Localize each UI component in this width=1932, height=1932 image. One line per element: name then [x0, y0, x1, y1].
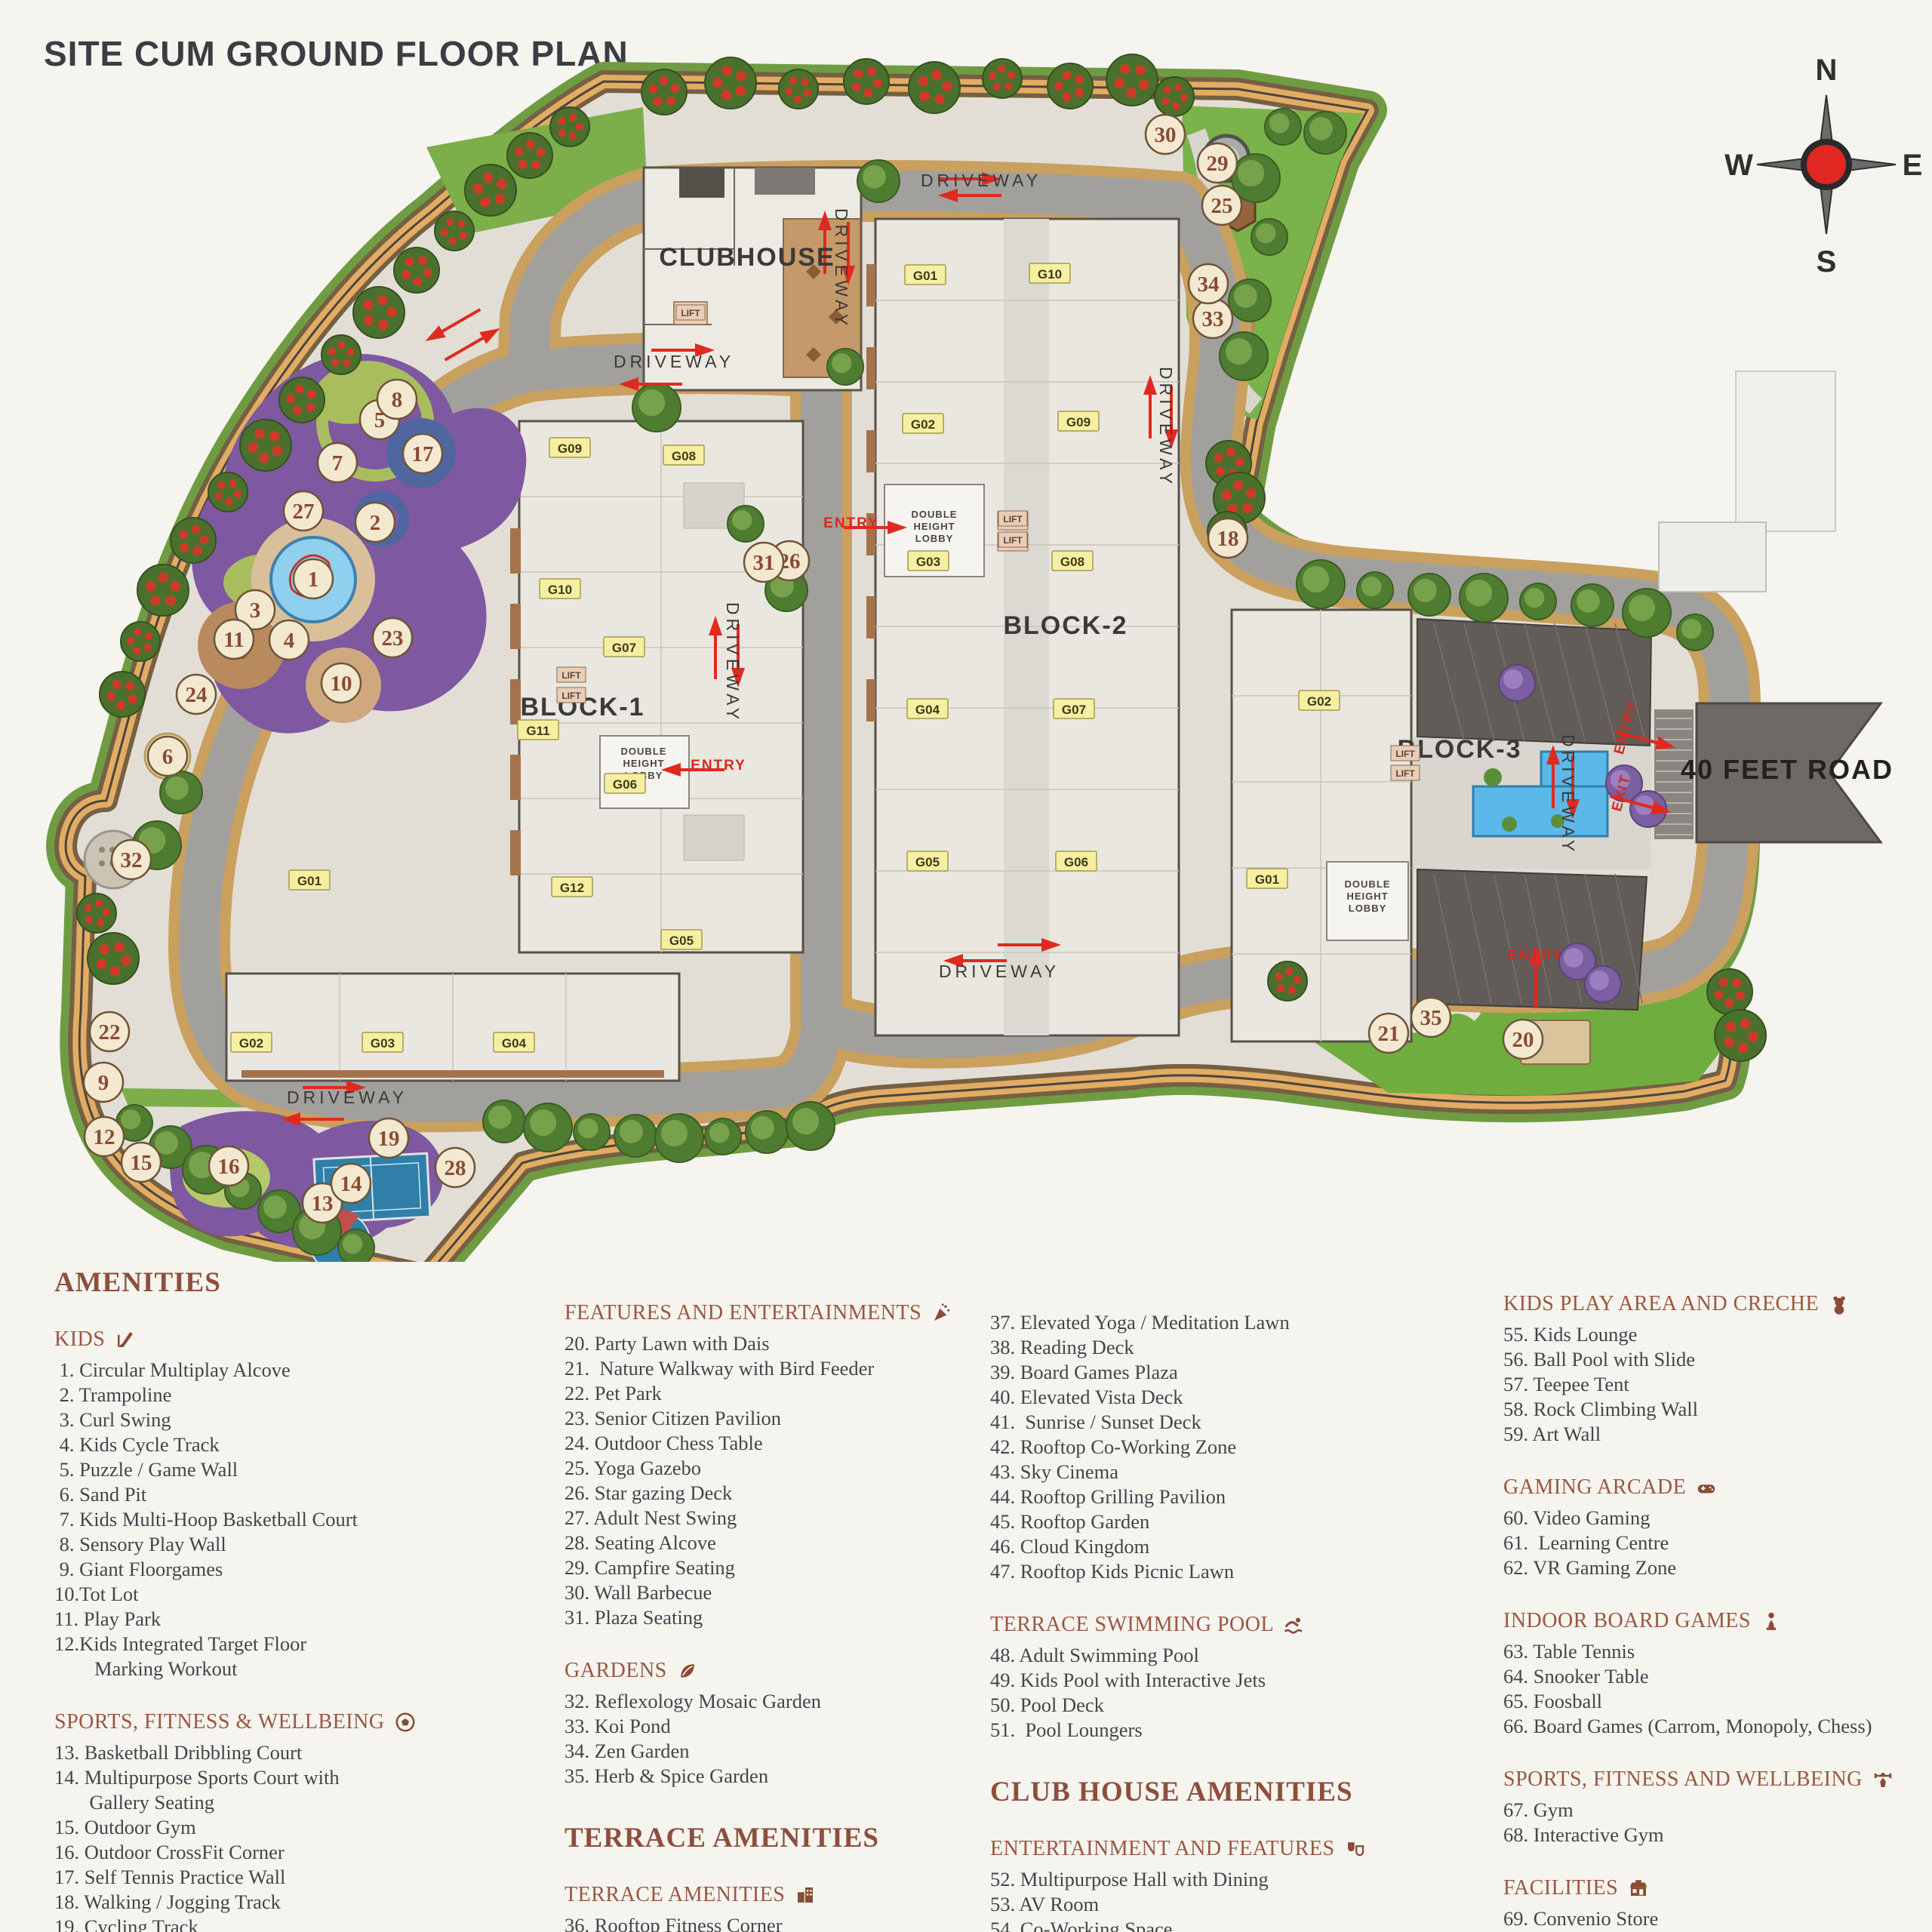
- legend-item: 49. Kids Pool with Interactive Jets: [990, 1668, 1488, 1693]
- legend-item: 8. Sensory Play Wall: [54, 1532, 537, 1557]
- legend-item: 48. Adult Swimming Pool: [990, 1643, 1488, 1668]
- legend-item: Marking Workout: [54, 1657, 537, 1681]
- legend-section: GAMING ARCADE60. Video Gaming61. Learnin…: [1503, 1475, 1926, 1580]
- legend-section-header-text: SPORTS, FITNESS AND WELLBEING: [1503, 1767, 1863, 1792]
- legend-section-header: FEATURES AND ENTERTAINMENTS: [565, 1301, 987, 1325]
- legend-item: 69. Convenio Store: [1503, 1906, 1926, 1931]
- legend-item: 38. Reading Deck: [990, 1335, 1488, 1360]
- legend-item: 65. Foosball: [1503, 1689, 1926, 1714]
- legend-item: 57. Teepee Tent: [1503, 1372, 1926, 1397]
- legend-item: 66. Board Games (Carrom, Monopoly, Chess…: [1503, 1714, 1926, 1739]
- legend-item: 46. Cloud Kingdom: [990, 1534, 1488, 1559]
- legend-item: 12.Kids Integrated Target Floor: [54, 1632, 537, 1657]
- legend-section-header-text: TERRACE SWIMMING POOL: [990, 1613, 1274, 1637]
- legend-section-header-text: FEATURES AND ENTERTAINMENTS: [565, 1301, 921, 1325]
- masks-icon: [1344, 1838, 1367, 1860]
- legend-item: 3. Curl Swing: [54, 1407, 537, 1432]
- legend-item: 15. Outdoor Gym: [54, 1815, 537, 1840]
- legend-item: 27. Adult Nest Swing: [565, 1506, 987, 1531]
- soccer-icon: [394, 1711, 417, 1734]
- legend-item: 1. Circular Multiplay Alcove: [54, 1358, 537, 1383]
- legend-section: FEATURES AND ENTERTAINMENTS20. Party Law…: [565, 1301, 987, 1630]
- legend-section: TERRACE SWIMMING POOL48. Adult Swimming …: [990, 1613, 1488, 1743]
- party-icon: [931, 1302, 953, 1324]
- legend-item: 11. Play Park: [54, 1607, 537, 1632]
- building-icon: [794, 1884, 817, 1906]
- legend-section: SPORTS, FITNESS AND WELLBEING67. Gym68. …: [1503, 1767, 1926, 1847]
- legend-item: 22. Pet Park: [565, 1381, 987, 1406]
- legend-section-header-text: KIDS: [54, 1327, 105, 1352]
- legend-category-title: AMENITIES: [54, 1266, 537, 1299]
- legend-section-header-text: FACILITIES: [1503, 1876, 1618, 1900]
- legend-section: 37. Elevated Yoga / Meditation Lawn38. R…: [990, 1310, 1488, 1584]
- legend-item: 29. Campfire Seating: [565, 1555, 987, 1580]
- legend-item: 19. Cycling Track: [54, 1915, 537, 1932]
- legend-item: 7. Kids Multi-Hoop Basketball Court: [54, 1507, 537, 1532]
- legend-section-header: SPORTS, FITNESS AND WELLBEING: [1503, 1767, 1926, 1792]
- legend-item: 40. Elevated Vista Deck: [990, 1385, 1488, 1410]
- legend-column-4: KIDS PLAY AREA AND CRECHE55. Kids Lounge…: [1503, 1292, 1926, 1932]
- legend-item: 18. Walking / Jogging Track: [54, 1890, 537, 1915]
- amenities-legend: AMENITIESKIDS 1. Circular Multiplay Alco…: [0, 0, 1932, 1932]
- legend-section-header: GARDENS: [565, 1659, 987, 1683]
- legend-section-header: KIDS: [54, 1327, 537, 1352]
- legend-section: KIDS 1. Circular Multiplay Alcove 2. Tra…: [54, 1327, 537, 1681]
- legend-item: 17. Self Tennis Practice Wall: [54, 1865, 537, 1890]
- legend-item: 36. Rooftop Fitness Corner: [565, 1913, 987, 1932]
- legend-item: 41. Sunrise / Sunset Deck: [990, 1410, 1488, 1435]
- legend-item: 32. Reflexology Mosaic Garden: [565, 1689, 987, 1714]
- teddy-icon: [1828, 1293, 1850, 1315]
- legend-section-header-text: SPORTS, FITNESS & WELLBEING: [54, 1710, 385, 1734]
- legend-item: 6. Sand Pit: [54, 1482, 537, 1507]
- legend-item: 37. Elevated Yoga / Meditation Lawn: [990, 1310, 1488, 1335]
- legend-item: 60. Video Gaming: [1503, 1506, 1926, 1531]
- legend-item: 64. Snooker Table: [1503, 1664, 1926, 1689]
- legend-item: 9. Giant Floorgames: [54, 1557, 537, 1582]
- legend-column-3: 37. Elevated Yoga / Meditation Lawn38. R…: [990, 1310, 1488, 1932]
- legend-section-header-text: TERRACE AMENITIES: [565, 1883, 785, 1907]
- lifter-icon: [1872, 1768, 1894, 1791]
- legend-section-header: GAMING ARCADE: [1503, 1475, 1926, 1500]
- legend-section-header: SPORTS, FITNESS & WELLBEING: [54, 1710, 537, 1734]
- legend-column-1: AMENITIESKIDS 1. Circular Multiplay Alco…: [54, 1266, 537, 1932]
- legend-item: 68. Interactive Gym: [1503, 1823, 1926, 1847]
- legend-item: 30. Wall Barbecue: [565, 1580, 987, 1605]
- legend-section: INDOOR BOARD GAMES63. Table Tennis64. Sn…: [1503, 1609, 1926, 1739]
- legend-item: 43. Sky Cinema: [990, 1460, 1488, 1484]
- legend-item: 63. Table Tennis: [1503, 1639, 1926, 1664]
- legend-item: 35. Herb & Spice Garden: [565, 1764, 987, 1789]
- legend-item: 58. Rock Climbing Wall: [1503, 1397, 1926, 1422]
- legend-item: Gallery Seating: [54, 1790, 537, 1815]
- swimmer-icon: [1283, 1614, 1306, 1636]
- legend-item: 52. Multipurpose Hall with Dining: [990, 1867, 1488, 1892]
- legend-item: 26. Star gazing Deck: [565, 1481, 987, 1506]
- legend-item: 53. AV Room: [990, 1892, 1488, 1917]
- legend-item: 5. Puzzle / Game Wall: [54, 1457, 537, 1482]
- legend-item: 62. VR Gaming Zone: [1503, 1555, 1926, 1580]
- legend-category-title: TERRACE AMENITIES: [565, 1822, 987, 1854]
- legend-item: 67. Gym: [1503, 1798, 1926, 1823]
- slide-icon: [114, 1328, 137, 1351]
- legend-section-header-text: INDOOR BOARD GAMES: [1503, 1609, 1751, 1633]
- legend-section: FACILITIES69. Convenio Store70. Coffee S…: [1503, 1876, 1926, 1932]
- legend-item: 25. Yoga Gazebo: [565, 1456, 987, 1481]
- legend-section: ENTERTAINMENT AND FEATURES52. Multipurpo…: [990, 1837, 1488, 1932]
- legend-item: 47. Rooftop Kids Picnic Lawn: [990, 1559, 1488, 1584]
- legend-item: 50. Pool Deck: [990, 1693, 1488, 1718]
- legend-item: 2. Trampoline: [54, 1383, 537, 1407]
- legend-section-header: FACILITIES: [1503, 1876, 1926, 1900]
- legend-item: 16. Outdoor CrossFit Corner: [54, 1840, 537, 1865]
- legend-item: 4. Kids Cycle Track: [54, 1432, 537, 1457]
- legend-item: 55. Kids Lounge: [1503, 1322, 1926, 1347]
- legend-item: 28. Seating Alcove: [565, 1531, 987, 1555]
- legend-section-header: ENTERTAINMENT AND FEATURES: [990, 1837, 1488, 1861]
- legend-section-header: KIDS PLAY AREA AND CRECHE: [1503, 1292, 1926, 1316]
- legend-item: 14. Multipurpose Sports Court with: [54, 1765, 537, 1790]
- legend-item: 54. Co-Working Space: [990, 1917, 1488, 1932]
- legend-item: 23. Senior Citizen Pavilion: [565, 1406, 987, 1431]
- legend-item: 56. Ball Pool with Slide: [1503, 1347, 1926, 1372]
- legend-item: 42. Rooftop Co-Working Zone: [990, 1435, 1488, 1460]
- legend-item: 21. Nature Walkway with Bird Feeder: [565, 1356, 987, 1381]
- legend-item: 51. Pool Loungers: [990, 1718, 1488, 1743]
- legend-item: 45. Rooftop Garden: [990, 1509, 1488, 1534]
- legend-section: KIDS PLAY AREA AND CRECHE55. Kids Lounge…: [1503, 1292, 1926, 1447]
- legend-section-header: INDOOR BOARD GAMES: [1503, 1609, 1926, 1633]
- legend-column-2: FEATURES AND ENTERTAINMENTS20. Party Law…: [565, 1301, 987, 1932]
- legend-item: 24. Outdoor Chess Table: [565, 1431, 987, 1456]
- legend-item: 39. Board Games Plaza: [990, 1360, 1488, 1385]
- legend-section: SPORTS, FITNESS & WELLBEING13. Basketbal…: [54, 1710, 537, 1932]
- legend-item: 31. Plaza Seating: [565, 1605, 987, 1630]
- legend-section: TERRACE AMENITIES36. Rooftop Fitness Cor…: [565, 1883, 987, 1932]
- legend-section-header: TERRACE SWIMMING POOL: [990, 1613, 1488, 1637]
- leaf-icon: [676, 1660, 699, 1682]
- legend-item: 59. Art Wall: [1503, 1422, 1926, 1447]
- legend-section: GARDENS32. Reflexology Mosaic Garden33. …: [565, 1659, 987, 1789]
- legend-section-header-text: KIDS PLAY AREA AND CRECHE: [1503, 1292, 1819, 1316]
- legend-section-header-text: GARDENS: [565, 1659, 667, 1683]
- legend-section-header: TERRACE AMENITIES: [565, 1883, 987, 1907]
- gamepad-icon: [1695, 1476, 1718, 1499]
- legend-item: 10.Tot Lot: [54, 1582, 537, 1607]
- legend-item: 61. Learning Centre: [1503, 1531, 1926, 1555]
- legend-section-header-text: GAMING ARCADE: [1503, 1475, 1686, 1500]
- legend-item: 20. Party Lawn with Dais: [565, 1331, 987, 1356]
- legend-item: 33. Koi Pond: [565, 1714, 987, 1739]
- legend-section-header-text: ENTERTAINMENT AND FEATURES: [990, 1837, 1335, 1861]
- legend-item: 34. Zen Garden: [565, 1739, 987, 1764]
- store-icon: [1627, 1877, 1650, 1900]
- legend-item: 13. Basketball Dribbling Court: [54, 1740, 537, 1765]
- pawn-icon: [1760, 1610, 1783, 1632]
- legend-item: 44. Rooftop Grilling Pavilion: [990, 1484, 1488, 1509]
- legend-category-title: CLUB HOUSE AMENITIES: [990, 1776, 1488, 1808]
